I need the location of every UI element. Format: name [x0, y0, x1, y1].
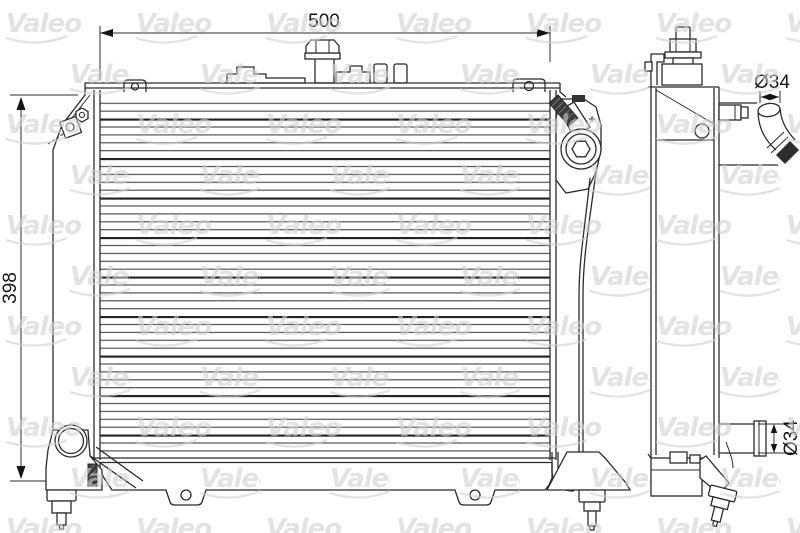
radiator-technical-drawing: Valeo Valeo 500 398: [0, 0, 800, 533]
valeo-watermark-layer: [0, 0, 800, 533]
radiator-technical-drawing-page: Valeo Valeo 500 398: [0, 0, 800, 533]
